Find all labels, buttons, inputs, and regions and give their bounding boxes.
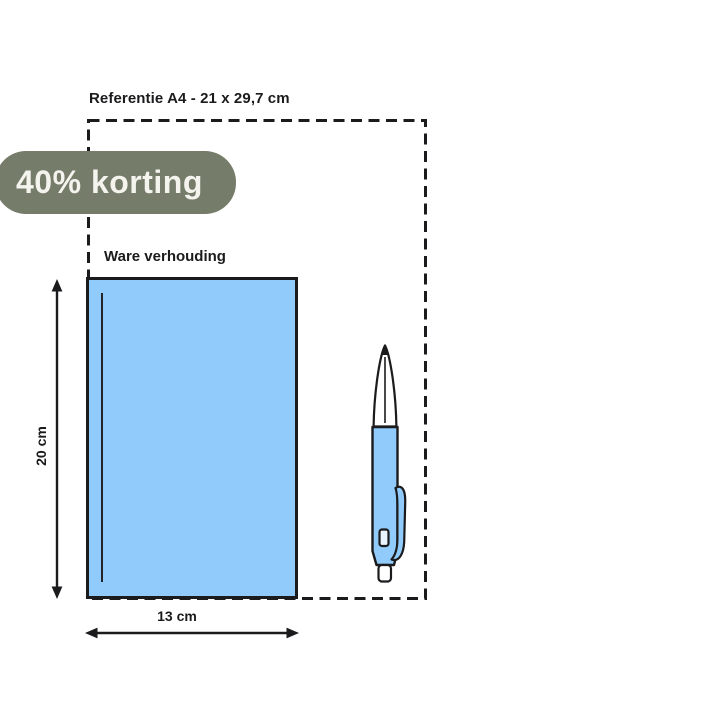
arrow-down-icon — [52, 587, 63, 600]
arrow-left-icon — [85, 628, 98, 639]
pen-plunger — [379, 565, 392, 582]
height-dimension-arrow — [52, 279, 63, 599]
width-dimension-arrow — [85, 628, 299, 639]
pen-icon — [373, 344, 406, 582]
height-dimension-label: 20 cm — [33, 426, 49, 466]
arrow-right-icon — [287, 628, 300, 639]
pen-tip-point — [381, 344, 388, 355]
notebook-spine-line — [101, 293, 103, 582]
discount-badge-label: 40% korting — [16, 164, 203, 201]
arrow-up-icon — [52, 279, 63, 292]
discount-badge: 40% korting — [0, 151, 236, 214]
width-dimension-label: 13 cm — [157, 608, 197, 624]
product-size-rectangle — [86, 277, 298, 599]
product-size-diagram: Referentie A4 - 21 x 29,7 cm 40% korting… — [0, 0, 726, 726]
true-scale-label: Ware verhouding — [104, 248, 226, 265]
reference-size-label: Referentie A4 - 21 x 29,7 cm — [89, 90, 290, 107]
pen-button — [380, 530, 389, 547]
